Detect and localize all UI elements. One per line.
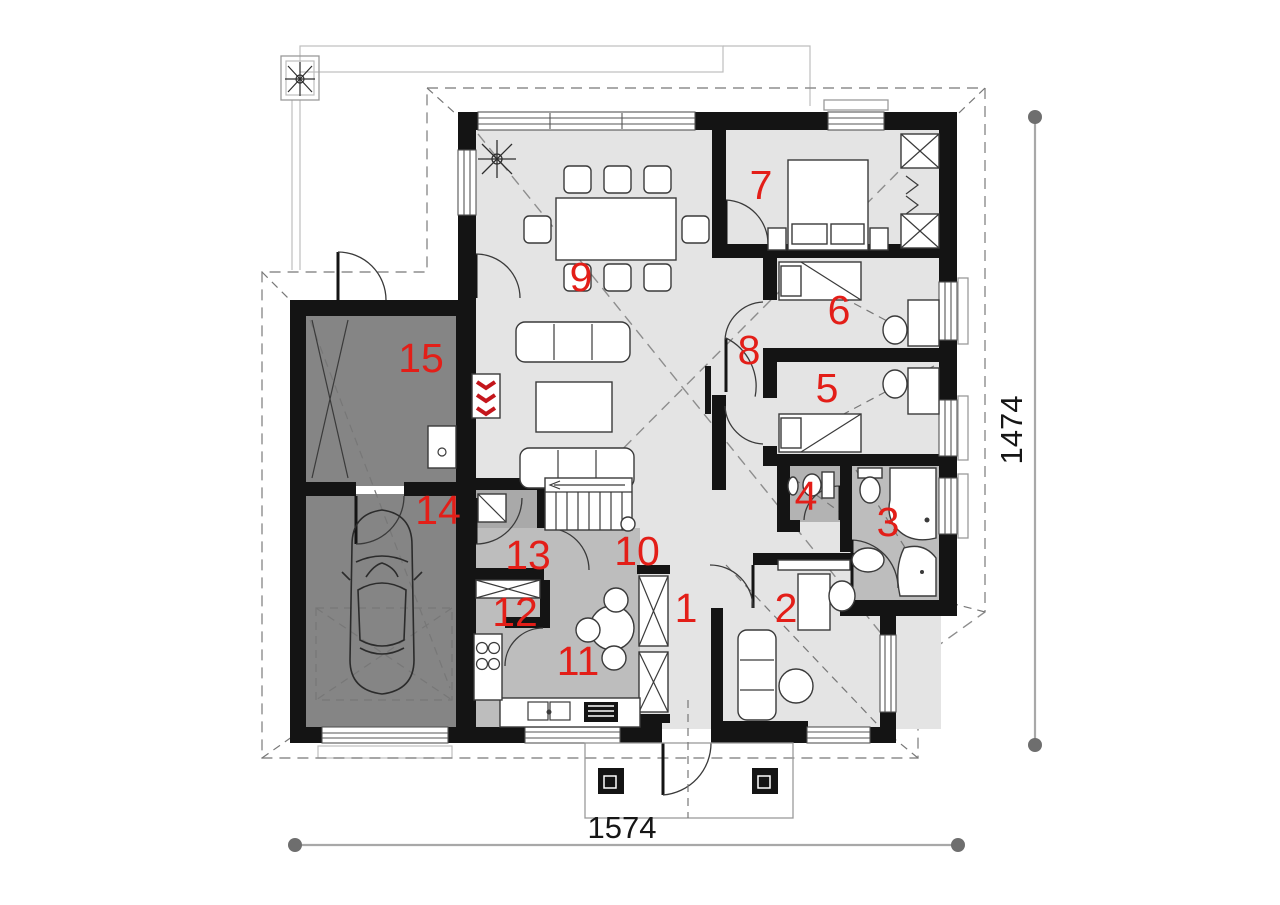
round-table-icon [779, 669, 813, 703]
room-label-13: 13 [505, 532, 551, 578]
room-label-4: 4 [795, 473, 818, 519]
shower-icon [898, 546, 936, 596]
room2-side-window [880, 635, 896, 712]
boiler-icon [428, 426, 456, 468]
entrance-door [663, 743, 711, 795]
room-label-12: 12 [492, 589, 538, 635]
nightstand-icon [870, 228, 888, 250]
chair-icon [682, 216, 709, 243]
chair-icon [524, 216, 551, 243]
room-label-8: 8 [738, 327, 761, 373]
washbasin-icon [852, 548, 884, 572]
porch-column-icon [752, 768, 778, 794]
room-label-7: 7 [750, 162, 773, 208]
living-room-window [478, 112, 695, 130]
sideboard-icon [778, 560, 850, 570]
kitchen-window [525, 727, 620, 743]
dimension-right: 1474 [994, 110, 1042, 752]
chair-icon [604, 166, 631, 193]
desk-chair-icon [883, 370, 907, 398]
room-label-6: 6 [828, 287, 851, 333]
stove-icon [584, 702, 618, 722]
room-label-9: 9 [570, 254, 593, 300]
chair-icon [564, 166, 591, 193]
dimension-bottom: 1574 [288, 810, 965, 852]
chair-icon [604, 264, 631, 291]
chair-icon [644, 264, 671, 291]
room-label-11: 11 [557, 638, 600, 684]
nightstand-icon [768, 228, 786, 250]
room-label-3: 3 [877, 499, 900, 545]
porch-column-icon [598, 768, 624, 794]
chair-icon [644, 166, 671, 193]
plant-icon [285, 62, 315, 96]
plant-icon [478, 140, 516, 178]
chair-icon [602, 646, 626, 670]
stairs-icon [545, 478, 635, 531]
desk-chair-icon [883, 316, 907, 344]
fireplace-icon [472, 374, 500, 418]
room-label-15: 15 [398, 335, 444, 381]
hall-cabinet-icon [639, 576, 668, 712]
garage-side-door [338, 252, 386, 300]
floor-plan-svg: 1 2 3 4 5 6 7 8 9 10 11 12 13 14 15 1574… [0, 0, 1280, 905]
room6-window [939, 278, 968, 344]
dimension-height-label: 1474 [994, 396, 1029, 465]
toilet-icon [858, 468, 882, 503]
tv-icon [705, 366, 711, 414]
room5-window [939, 396, 968, 460]
living-left-window [458, 150, 476, 215]
room-label-14: 14 [415, 487, 461, 533]
chair-icon [604, 588, 628, 612]
room-label-5: 5 [816, 365, 839, 411]
room2-bottom-window [807, 727, 870, 743]
garage-door [322, 727, 448, 743]
bedroom7-window [824, 100, 888, 130]
bathroom-window [939, 474, 968, 538]
coffee-table-icon [536, 382, 612, 432]
bed-single-icon [779, 414, 861, 452]
desk-chair-icon [829, 581, 855, 611]
room-label-1: 1 [675, 585, 698, 631]
sofa-icon [738, 630, 776, 720]
floor-plan-page: 1 2 3 4 5 6 7 8 9 10 11 12 13 14 15 1574… [0, 0, 1280, 905]
washer-icon [478, 494, 506, 522]
room-label-2: 2 [775, 585, 798, 631]
room-label-10: 10 [614, 528, 660, 574]
sofa-icon [516, 322, 630, 362]
dimension-width-label: 1574 [588, 810, 657, 845]
